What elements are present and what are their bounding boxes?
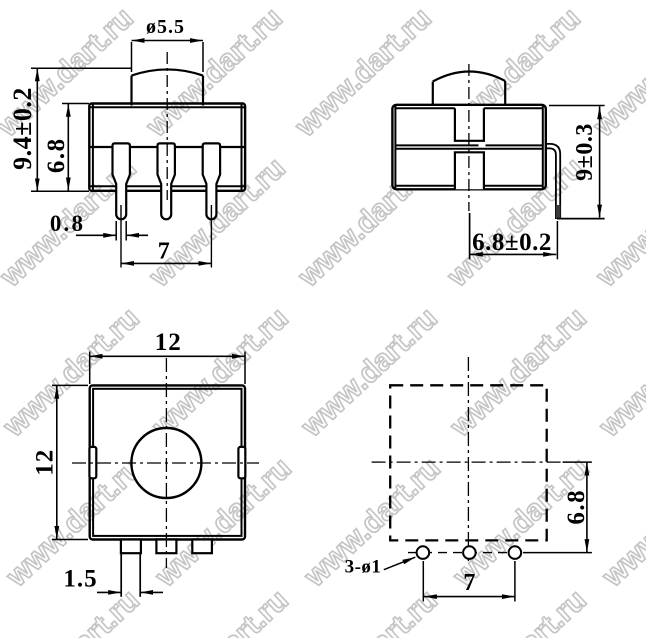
svg-text:9±0.3: 9±0.3 — [572, 123, 598, 181]
svg-text:7: 7 — [463, 570, 475, 596]
svg-text:12: 12 — [155, 329, 182, 356]
svg-text:www.dart.ru: www.dart.ru — [295, 584, 444, 638]
svg-text:www.dart.ru: www.dart.ru — [0, 302, 146, 444]
svg-text:www.dart.ru: www.dart.ru — [146, 302, 295, 444]
svg-text:www.dart.ru: www.dart.ru — [146, 584, 295, 638]
svg-text:7: 7 — [158, 239, 170, 265]
svg-text:www.dart.ru: www.dart.ru — [596, 452, 646, 594]
svg-text:www.dart.ru: www.dart.ru — [444, 302, 593, 444]
svg-text:www.dart.ru: www.dart.ru — [590, 152, 646, 294]
svg-text:12: 12 — [31, 449, 58, 476]
svg-text:6.8: 6.8 — [563, 489, 590, 525]
svg-text:1.5: 1.5 — [63, 565, 97, 592]
svg-text:6.8: 6.8 — [43, 137, 70, 173]
svg-text:www.dart.ru: www.dart.ru — [593, 302, 646, 444]
svg-text:3-ø1: 3-ø1 — [345, 556, 382, 577]
svg-text:0.8: 0.8 — [50, 211, 85, 236]
svg-text:6.8±0.2: 6.8±0.2 — [472, 229, 552, 256]
svg-text:www.dart.ru: www.dart.ru — [295, 302, 444, 444]
svg-text:9.4±0.2: 9.4±0.2 — [8, 87, 37, 170]
svg-text:ø5.5: ø5.5 — [146, 16, 185, 38]
svg-text:www.dart.ru: www.dart.ru — [587, 2, 646, 144]
